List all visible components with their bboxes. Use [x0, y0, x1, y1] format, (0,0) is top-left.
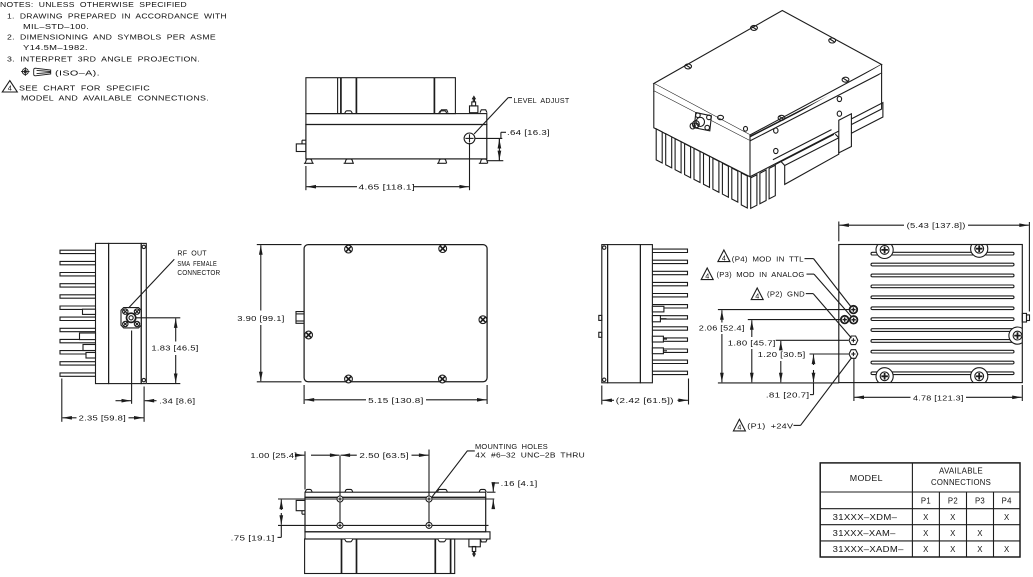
svg-text:1.20 [30.5]: 1.20 [30.5] — [758, 350, 806, 359]
svg-text:4: 4 — [755, 291, 759, 300]
svg-text:X: X — [950, 529, 956, 538]
svg-text:1.83 [46.5]: 1.83 [46.5] — [151, 344, 198, 353]
svg-text:4X #6–32 UNC–2B THRU: 4X #6–32 UNC–2B THRU — [475, 451, 585, 460]
svg-text:.16 [4.1]: .16 [4.1] — [501, 479, 538, 488]
svg-text:(P3) MOD IN ANALOG: (P3) MOD IN ANALOG — [717, 270, 805, 279]
svg-text:31XXX–XADM–: 31XXX–XADM– — [833, 545, 904, 554]
svg-text:.75 [19.1]: .75 [19.1] — [231, 533, 275, 542]
svg-text:(2.42 [61.5]): (2.42 [61.5]) — [616, 396, 674, 405]
svg-text:31XXX–XAM–: 31XXX–XAM– — [833, 529, 896, 538]
svg-text:1. DRAWING PREPARED IN ACC: 1. DRAWING PREPARED IN ACCORDANCE WITH — [7, 11, 227, 20]
svg-text:AVAILABLE: AVAILABLE — [939, 467, 983, 476]
svg-text:4.78 [121.3]: 4.78 [121.3] — [913, 393, 964, 402]
svg-text:SEE CHART FOR SPECIFIC: SEE CHART FOR SPECIFIC — [19, 83, 150, 92]
svg-text:4.65 [118.1]: 4.65 [118.1] — [359, 183, 416, 192]
svg-text:P1: P1 — [921, 497, 931, 506]
svg-text:X: X — [923, 545, 929, 554]
svg-text:.34 [8.6]: .34 [8.6] — [159, 397, 195, 406]
svg-text:.81 [20.7]: .81 [20.7] — [766, 391, 810, 400]
svg-text:LEVEL ADJUST: LEVEL ADJUST — [514, 96, 570, 105]
svg-text:4: 4 — [8, 84, 12, 93]
svg-text:X: X — [950, 513, 956, 522]
svg-text:(5.43 [137.8]): (5.43 [137.8]) — [907, 221, 966, 230]
svg-text:31XXX–XDM–: 31XXX–XDM– — [833, 513, 898, 522]
svg-text:3.90 [99.1]: 3.90 [99.1] — [237, 314, 284, 323]
svg-text:2. DIMENSIONING AND SYMBOLS: 2. DIMENSIONING AND SYMBOLS PER ASME — [7, 32, 216, 41]
svg-text:RF OUT: RF OUT — [177, 248, 206, 257]
svg-text:4: 4 — [705, 271, 709, 280]
svg-text:CONNECTOR: CONNECTOR — [177, 268, 220, 277]
svg-text:X: X — [923, 513, 929, 522]
svg-text:2.06 [52.4]: 2.06 [52.4] — [699, 324, 745, 333]
svg-text:P3: P3 — [975, 497, 985, 506]
svg-text:Y14.5M–1982.: Y14.5M–1982. — [23, 43, 88, 52]
svg-text:NOTES: UNLESS OTHERWISE SPE: NOTES: UNLESS OTHERWISE SPECIFIED — [0, 0, 187, 9]
svg-text:4: 4 — [722, 253, 726, 262]
svg-text:X: X — [1004, 545, 1010, 554]
svg-text:MODEL AND AVAILABLE CONNECT: MODEL AND AVAILABLE CONNECTIONS. — [21, 93, 209, 102]
svg-text:P2: P2 — [948, 497, 958, 506]
svg-text:(P1) +24V: (P1) +24V — [747, 421, 794, 430]
svg-text:3. INTERPRET 3RD ANGLE PRO: 3. INTERPRET 3RD ANGLE PROJECTION. — [7, 54, 200, 63]
svg-text:5.15 [130.8]: 5.15 [130.8] — [368, 396, 423, 405]
svg-text:X: X — [1004, 513, 1010, 522]
svg-text:2.35 [59.8]: 2.35 [59.8] — [79, 414, 126, 423]
svg-text:X: X — [977, 529, 983, 538]
svg-text:1.80 [45.7]: 1.80 [45.7] — [728, 338, 776, 347]
svg-text:(P2) GND: (P2) GND — [767, 290, 805, 299]
svg-text:(ISO–A).: (ISO–A). — [55, 68, 100, 77]
svg-text:(P4) MOD IN TTL: (P4) MOD IN TTL — [732, 254, 804, 263]
svg-text:X: X — [950, 545, 956, 554]
svg-text:1.00 [25.4]: 1.00 [25.4] — [250, 451, 297, 460]
svg-text:X: X — [923, 529, 929, 538]
svg-text:CONNECTIONS: CONNECTIONS — [931, 478, 991, 487]
svg-text:MODEL: MODEL — [850, 474, 883, 483]
svg-text:MOUNTING HOLES: MOUNTING HOLES — [475, 442, 548, 451]
svg-text:4: 4 — [737, 423, 741, 432]
svg-text:SMA FEMALE: SMA FEMALE — [177, 259, 217, 268]
svg-text:MIL–STD–100.: MIL–STD–100. — [23, 22, 89, 31]
svg-text:P4: P4 — [1002, 497, 1012, 506]
svg-text:X: X — [977, 545, 983, 554]
svg-text:2.50 [63.5]: 2.50 [63.5] — [359, 451, 409, 460]
svg-text:.64 [16.3]: .64 [16.3] — [507, 128, 550, 137]
